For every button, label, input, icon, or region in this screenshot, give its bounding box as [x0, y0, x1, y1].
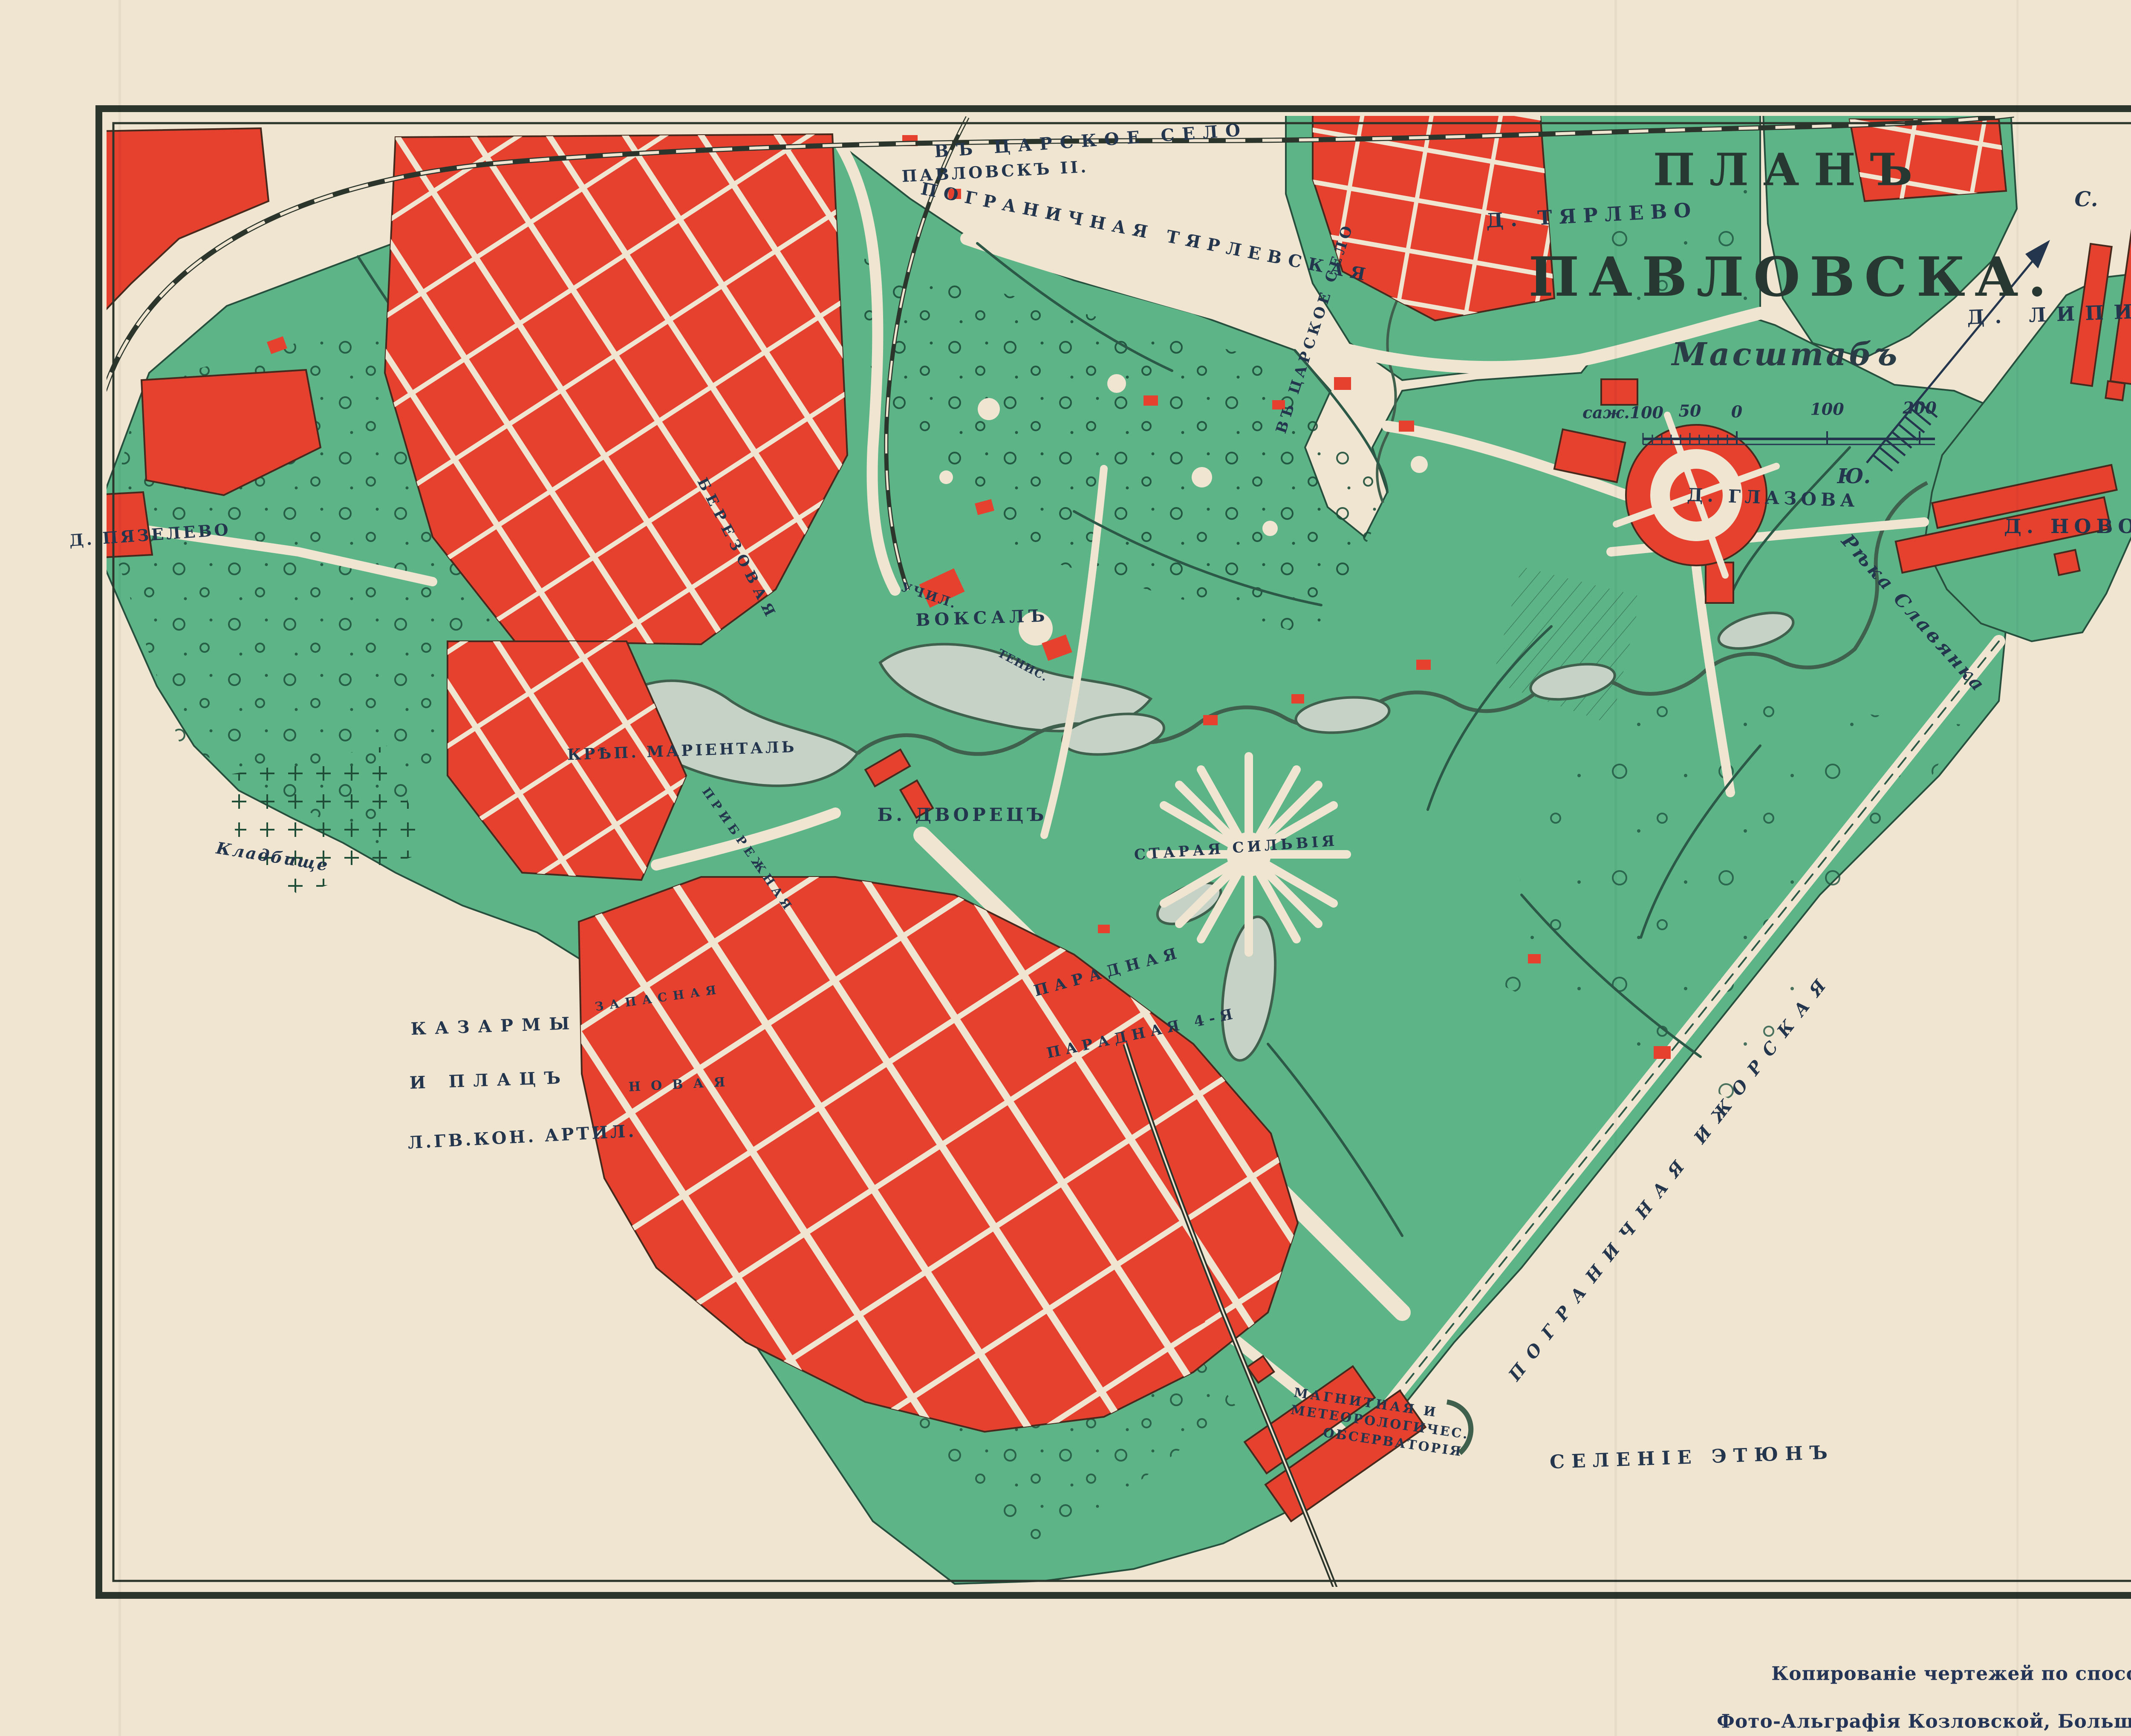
star-plaza — [1151, 756, 1347, 952]
map-canvas — [0, 0, 2131, 1736]
map-sheet: ПЛАНЪ ПАВЛОВСКА. Масштабъ саж.100 50 0 1… — [0, 0, 2131, 1736]
